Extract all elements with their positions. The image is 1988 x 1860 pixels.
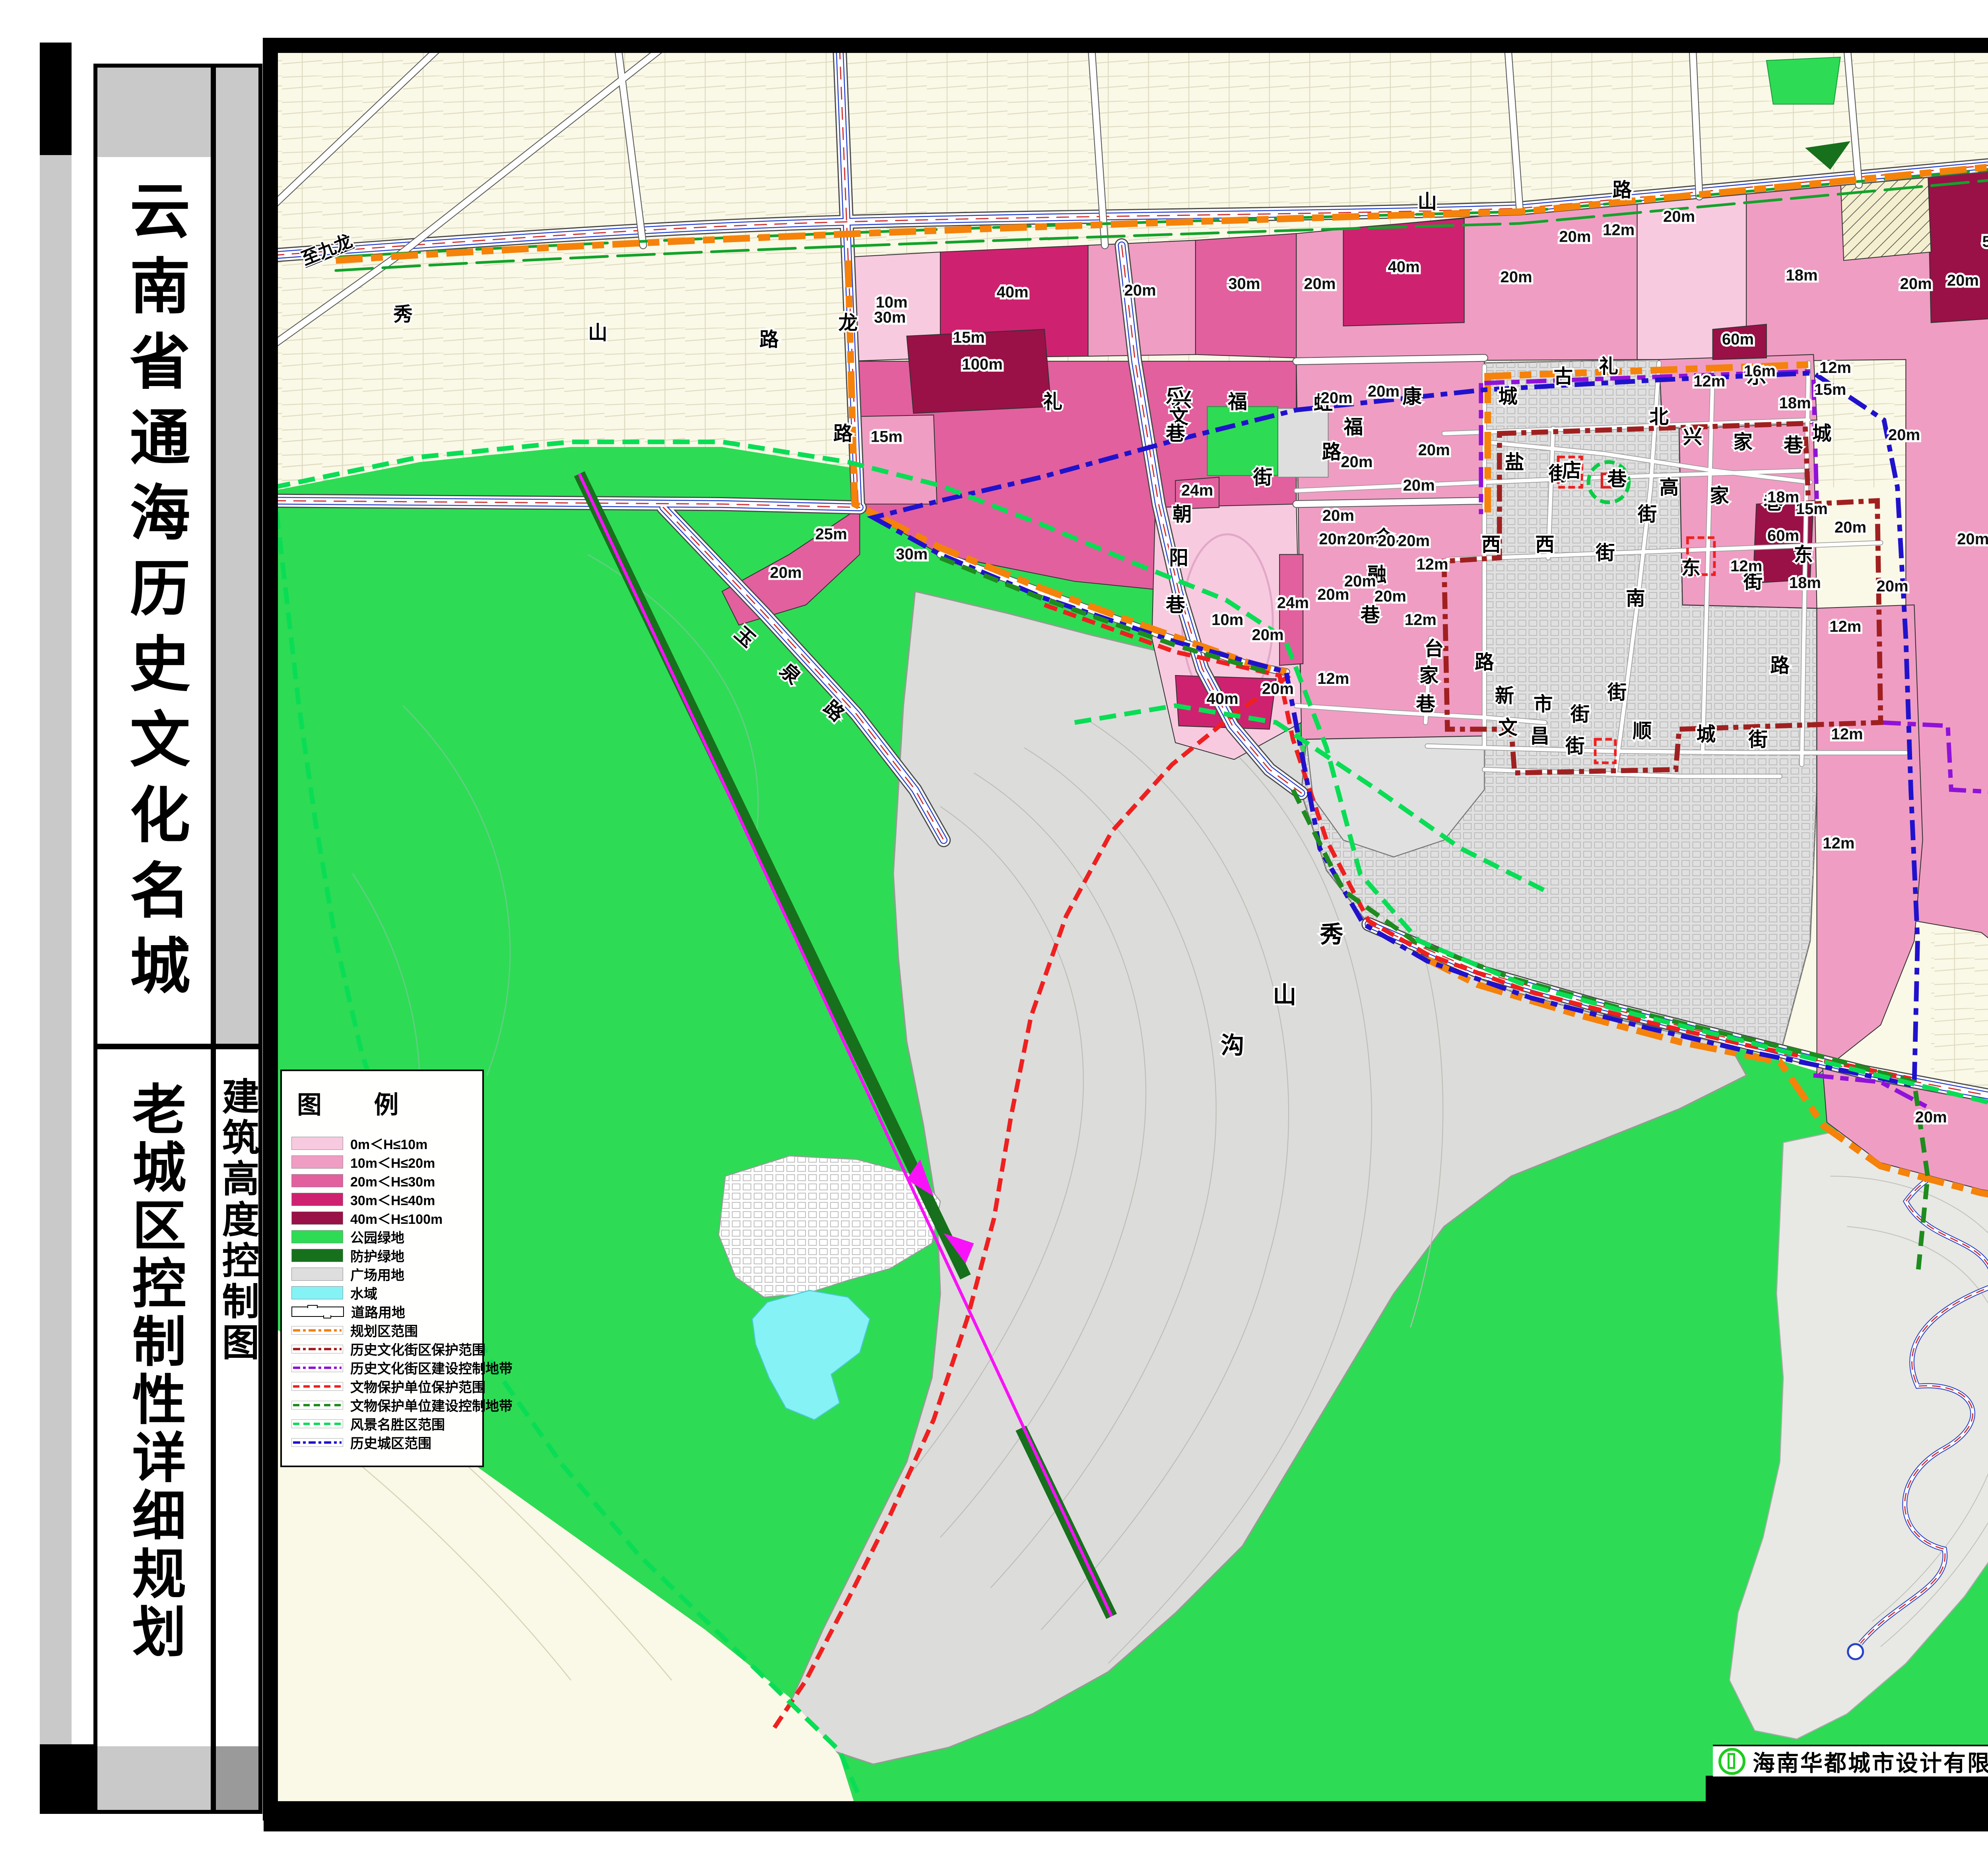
legend-item: 历史城区范围	[291, 1433, 474, 1452]
svg-text:东: 东	[1794, 544, 1813, 565]
svg-text:街: 街	[1565, 736, 1585, 757]
svg-text:20m: 20m	[1500, 268, 1532, 286]
footer-bar: 海南华都城市设计有限公司 Hainan Huadu Urban Design C…	[1713, 1745, 1988, 1777]
svg-text:20m: 20m	[1559, 228, 1591, 246]
svg-text:路: 路	[1612, 179, 1632, 201]
svg-text:礼: 礼	[1599, 356, 1619, 377]
company-logo-icon	[1718, 1748, 1745, 1775]
svg-text:街: 街	[1748, 729, 1768, 750]
planning-sheet: { "sidebar": { "title_main": "云南省通海历史文化名…	[0, 0, 1988, 1860]
svg-text:20m: 20m	[1888, 426, 1920, 444]
svg-text:20m: 20m	[1915, 1108, 1947, 1126]
company-name-cn: 海南华都城市设计有限公司	[1753, 1745, 1988, 1778]
svg-text:15m: 15m	[1814, 381, 1846, 398]
legend-item: 20m＜H≤30m	[291, 1171, 474, 1190]
legend-line-swatch	[291, 1438, 343, 1447]
svg-text:阳: 阳	[1169, 548, 1188, 569]
svg-text:10m: 10m	[1211, 611, 1243, 629]
svg-text:西: 西	[1535, 534, 1555, 555]
svg-text:20m: 20m	[1876, 577, 1908, 595]
svg-text:40m: 40m	[996, 283, 1028, 301]
legend-item: 历史文化街区建设控制地带	[291, 1358, 474, 1377]
svg-text:60m: 60m	[1767, 527, 1799, 545]
svg-text:20m: 20m	[1403, 476, 1435, 494]
legend-item: 历史文化街区保护范围	[291, 1340, 474, 1358]
svg-text:24m: 24m	[1277, 594, 1309, 612]
svg-text:20m: 20m	[1347, 530, 1379, 548]
legend-item-label: 历史文化街区建设控制地带	[350, 1358, 513, 1377]
svg-text:20m: 20m	[1319, 530, 1351, 548]
legend-item-label: 30m＜H≤40m	[350, 1190, 435, 1209]
svg-text:18m: 18m	[1779, 394, 1811, 412]
svg-text:15m: 15m	[1796, 500, 1828, 518]
svg-text:20m: 20m	[1252, 626, 1283, 644]
svg-text:盐: 盐	[1505, 452, 1524, 473]
svg-text:60m: 60m	[1722, 330, 1754, 348]
svg-text:20m: 20m	[1317, 586, 1349, 604]
legend-item-label: 广场用地	[350, 1264, 404, 1284]
svg-text:家: 家	[1419, 665, 1439, 687]
svg-text:巷: 巷	[1166, 594, 1185, 616]
svg-text:福: 福	[1227, 391, 1247, 413]
legend-swatch	[291, 1286, 343, 1299]
legend-swatch	[291, 1212, 343, 1225]
footer-black-band	[1706, 1776, 1988, 1812]
svg-text:康: 康	[1402, 386, 1422, 408]
legend-line-swatch	[291, 1401, 343, 1410]
svg-text:20m: 20m	[770, 564, 802, 582]
svg-text:巷: 巷	[1607, 468, 1627, 490]
svg-text:街: 街	[1253, 467, 1273, 488]
svg-text:山: 山	[1273, 982, 1296, 1008]
svg-text:秀: 秀	[1319, 921, 1343, 948]
svg-text:巷: 巷	[1361, 605, 1380, 626]
svg-text:山: 山	[1417, 191, 1437, 213]
svg-text:新: 新	[1495, 685, 1514, 707]
legend-title: 图 例	[297, 1085, 474, 1120]
legend-item-label: 20m＜H≤30m	[350, 1171, 435, 1190]
svg-text:兴: 兴	[1683, 427, 1703, 448]
svg-text:20m: 20m	[1341, 453, 1373, 471]
svg-text:文: 文	[1498, 717, 1518, 739]
svg-text:15m: 15m	[953, 328, 985, 346]
svg-text:秀: 秀	[393, 304, 413, 325]
legend-swatch	[291, 1174, 343, 1187]
svg-text:12m: 12m	[1317, 670, 1349, 687]
legend-item: 规划区范围	[291, 1321, 474, 1340]
svg-text:12m: 12m	[1831, 725, 1863, 743]
svg-text:路: 路	[1322, 442, 1342, 463]
legend-item-label: 历史城区范围	[350, 1433, 431, 1452]
svg-text:龙: 龙	[838, 312, 858, 334]
legend-swatch	[291, 1137, 343, 1150]
planning-map: N 050100200300m 至九龙至华宁至里山至建水 秀山路山路龙路玉泉路礼…	[0, 0, 1988, 1860]
svg-text:12m: 12m	[1829, 617, 1861, 635]
legend-line-swatch	[291, 1419, 343, 1428]
legend-item: 风景名胜区范围	[291, 1414, 474, 1433]
svg-text:12m: 12m	[1693, 372, 1725, 390]
legend-item: 道路用地	[291, 1302, 474, 1321]
svg-text:15m: 15m	[871, 427, 903, 445]
svg-text:路: 路	[1770, 655, 1790, 676]
svg-text:市: 市	[1534, 694, 1553, 715]
legend-item: 0m＜H≤10m	[291, 1134, 474, 1153]
legend-item: 文物保护单位保护范围	[291, 1377, 474, 1396]
legend-item: 水域	[291, 1283, 474, 1302]
legend-item: 公园绿地	[291, 1227, 474, 1246]
svg-text:20m: 20m	[1957, 530, 1988, 548]
legend-item-label: 40m＜H≤100m	[350, 1208, 443, 1228]
svg-text:20m: 20m	[1304, 275, 1336, 293]
legend-item-label: 文物保护单位保护范围	[350, 1377, 485, 1396]
legend-item: 广场用地	[291, 1265, 474, 1283]
svg-text:50m: 50m	[1982, 233, 1988, 250]
legend-swatch	[291, 1268, 343, 1281]
svg-text:30m: 30m	[896, 545, 928, 563]
svg-text:20m: 20m	[1321, 389, 1353, 407]
svg-text:18m: 18m	[1767, 488, 1799, 506]
svg-text:12m: 12m	[1823, 834, 1854, 852]
svg-text:12m: 12m	[1416, 555, 1448, 573]
legend-item: 40m＜H≤100m	[291, 1209, 474, 1227]
svg-text:20m: 20m	[1418, 441, 1450, 459]
svg-text:12m: 12m	[1819, 359, 1851, 377]
svg-text:路: 路	[1475, 652, 1494, 673]
svg-text:北: 北	[1649, 406, 1669, 428]
svg-text:街: 街	[1570, 704, 1590, 725]
svg-text:20m: 20m	[1375, 587, 1406, 605]
svg-text:东: 东	[1681, 557, 1701, 579]
svg-text:16m: 16m	[1744, 362, 1776, 380]
svg-text:沟: 沟	[1221, 1032, 1244, 1059]
svg-text:30m: 30m	[874, 308, 906, 326]
legend-swatch	[291, 1155, 343, 1169]
legend-line-swatch	[291, 1363, 343, 1372]
svg-text:城: 城	[1697, 724, 1716, 746]
legend-item-label: 历史文化街区保护范围	[350, 1339, 485, 1359]
legend-item-label: 风景名胜区范围	[350, 1414, 445, 1433]
svg-text:巷: 巷	[1416, 694, 1435, 715]
svg-text:巷: 巷	[1166, 423, 1185, 445]
legend-item: 10m＜H≤20m	[291, 1153, 474, 1171]
svg-text:20m: 20m	[1947, 271, 1979, 289]
svg-text:12m: 12m	[1405, 611, 1437, 629]
svg-text:巷: 巷	[1784, 435, 1803, 456]
legend-road-swatch	[291, 1307, 344, 1317]
svg-text:18m: 18m	[1786, 266, 1817, 284]
svg-text:昌: 昌	[1530, 726, 1549, 747]
svg-text:台: 台	[1424, 638, 1444, 660]
plaza-area	[1278, 408, 1328, 477]
svg-text:20m: 20m	[1900, 275, 1932, 293]
legend-item-label: 公园绿地	[350, 1227, 404, 1246]
legend-item-label: 道路用地	[351, 1302, 405, 1321]
legend-item-label: 文物保护单位建设控制地带	[350, 1395, 513, 1415]
svg-text:20m: 20m	[1398, 532, 1430, 549]
legend-line-swatch	[291, 1345, 343, 1353]
svg-text:街: 街	[1637, 504, 1657, 525]
park-patch-north	[1767, 57, 1840, 104]
svg-text:城: 城	[1812, 423, 1832, 445]
svg-text:南: 南	[1626, 588, 1645, 609]
legend-line-swatch	[291, 1382, 343, 1391]
svg-text:24m: 24m	[1181, 482, 1213, 499]
svg-text:40m: 40m	[1388, 258, 1419, 276]
svg-text:25m: 25m	[815, 525, 847, 543]
svg-text:店: 店	[1562, 460, 1582, 482]
svg-text:路: 路	[759, 329, 779, 351]
svg-text:街: 街	[1595, 542, 1615, 564]
legend-swatch	[291, 1249, 343, 1262]
legend-item-label: 规划区范围	[350, 1320, 418, 1340]
svg-text:40m: 40m	[1206, 690, 1238, 708]
svg-text:20m: 20m	[1835, 518, 1866, 536]
svg-text:100m: 100m	[962, 355, 1003, 373]
legend-item-label: 防护绿地	[350, 1246, 404, 1265]
svg-text:12m: 12m	[1603, 221, 1635, 239]
legend-swatch	[291, 1193, 343, 1206]
svg-text:街: 街	[1607, 682, 1627, 703]
legend-line-swatch	[291, 1326, 343, 1335]
svg-text:礼: 礼	[1043, 391, 1063, 413]
svg-text:福: 福	[1343, 416, 1363, 438]
svg-text:20m: 20m	[1322, 507, 1354, 524]
legend-swatch	[291, 1230, 343, 1243]
svg-text:30m: 30m	[1228, 275, 1260, 293]
svg-text:古: 古	[1554, 366, 1573, 387]
svg-text:家: 家	[1733, 431, 1753, 453]
svg-text:12m: 12m	[1730, 557, 1762, 575]
svg-text:高: 高	[1660, 477, 1679, 498]
svg-text:20m: 20m	[1368, 382, 1400, 400]
svg-text:路: 路	[833, 423, 853, 445]
svg-text:家: 家	[1710, 485, 1729, 507]
svg-text:山: 山	[588, 322, 608, 344]
legend-item-label: 0m＜H≤10m	[350, 1134, 427, 1153]
svg-text:20m: 20m	[1124, 282, 1156, 299]
legend-item-label: 10m＜H≤20m	[350, 1152, 435, 1172]
legend-item: 30m＜H≤40m	[291, 1190, 474, 1209]
svg-text:城: 城	[1498, 386, 1518, 408]
legend-item: 防护绿地	[291, 1246, 474, 1265]
svg-text:18m: 18m	[1789, 574, 1821, 592]
svg-text:西: 西	[1481, 534, 1501, 555]
svg-text:20m: 20m	[1663, 208, 1695, 225]
svg-text:顺: 顺	[1633, 720, 1652, 742]
legend-item: 文物保护单位建设控制地带	[291, 1396, 474, 1414]
legend-box: 图 例 0m＜H≤10m10m＜H≤20m20m＜H≤30m30m＜H≤40m4…	[280, 1070, 484, 1467]
legend-item-label: 水域	[350, 1283, 377, 1303]
svg-text:朝: 朝	[1173, 504, 1192, 525]
svg-text:20m: 20m	[1262, 680, 1294, 697]
